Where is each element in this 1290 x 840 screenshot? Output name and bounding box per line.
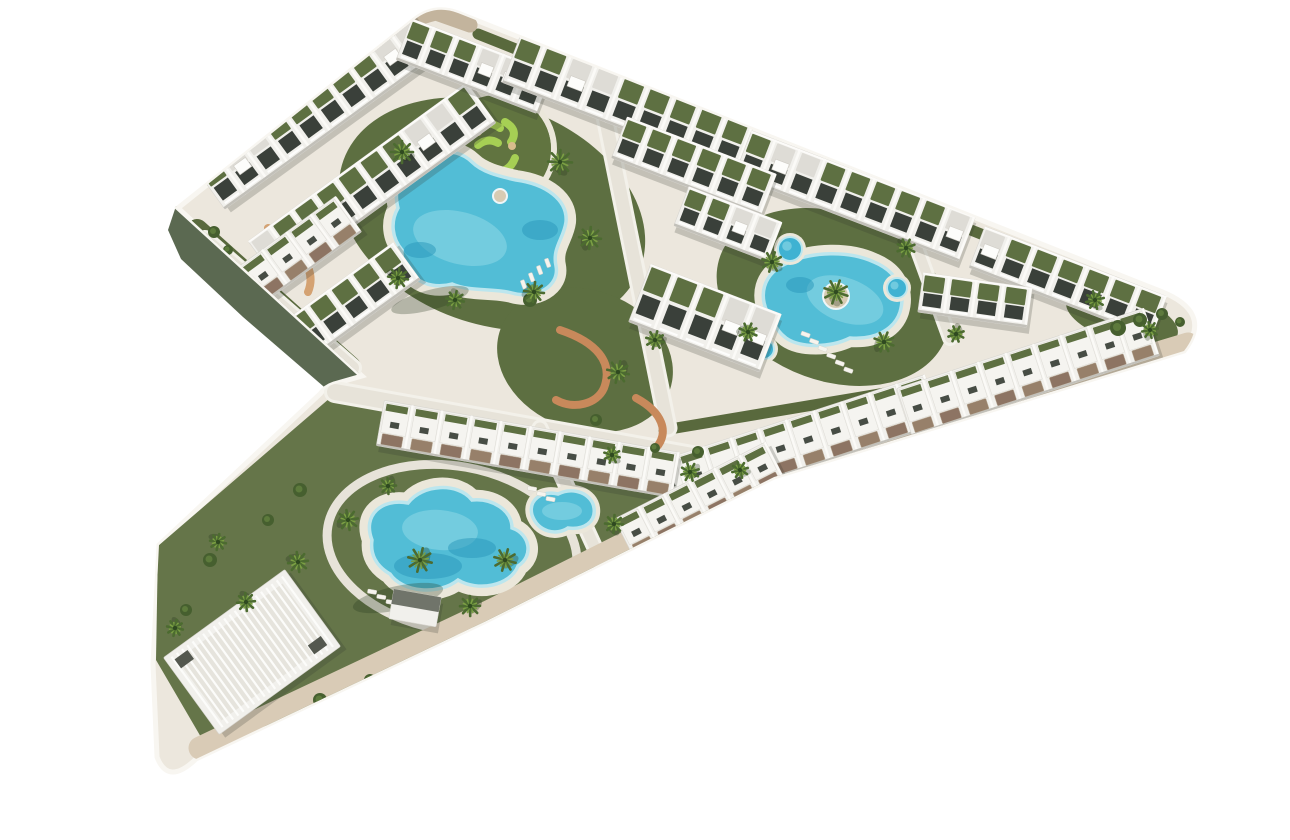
render-canvas bbox=[0, 0, 1290, 840]
palm-frond bbox=[498, 643, 505, 650]
palm-crown bbox=[560, 598, 564, 602]
window-band bbox=[949, 297, 969, 313]
bush-highlight bbox=[616, 611, 622, 617]
bush-highlight bbox=[652, 445, 657, 450]
palm-frond bbox=[640, 588, 645, 594]
palm-shadow bbox=[627, 579, 643, 594]
bush-highlight bbox=[1177, 319, 1182, 324]
palm-tree bbox=[552, 590, 574, 610]
palm-frond bbox=[562, 597, 569, 600]
spa-circle bbox=[883, 274, 911, 302]
site-interior bbox=[156, 13, 1188, 748]
palm-frond bbox=[503, 638, 506, 644]
bush bbox=[614, 609, 626, 621]
palm-shadow bbox=[496, 638, 505, 655]
palm-frond bbox=[635, 584, 640, 589]
window-band bbox=[977, 300, 997, 316]
pool-depth bbox=[786, 277, 814, 293]
roof-garden bbox=[977, 283, 1000, 302]
palm-frond bbox=[562, 600, 569, 607]
palm-frond bbox=[499, 643, 505, 646]
palm-frond bbox=[505, 644, 511, 647]
roof-garden bbox=[1004, 287, 1027, 306]
palm-frond bbox=[562, 600, 569, 603]
palm-crown bbox=[637, 585, 643, 591]
palm-frond bbox=[637, 583, 642, 588]
roof-garden bbox=[950, 279, 973, 298]
palm-frond bbox=[505, 635, 506, 644]
palm-frond bbox=[637, 580, 645, 588]
pool-depth bbox=[448, 538, 496, 558]
palm-frond bbox=[555, 600, 562, 607]
palm-frond bbox=[505, 638, 508, 644]
bush-highlight bbox=[206, 556, 213, 563]
pool-lower bbox=[369, 488, 528, 590]
palm-tree bbox=[627, 577, 651, 601]
pool-kidney bbox=[531, 491, 594, 532]
bush-highlight bbox=[581, 636, 588, 643]
palm-frond bbox=[559, 600, 562, 607]
palm-frond bbox=[562, 594, 565, 601]
bush-highlight bbox=[225, 247, 230, 252]
palm-tree bbox=[495, 634, 515, 656]
pool-depth bbox=[522, 220, 558, 240]
bush-highlight bbox=[1113, 323, 1121, 331]
palm-frond bbox=[502, 644, 505, 650]
bush-highlight bbox=[592, 416, 598, 422]
palm-frond bbox=[562, 593, 569, 600]
bush-highlight bbox=[264, 516, 270, 522]
palm-frond bbox=[635, 582, 640, 588]
palm-frond bbox=[636, 588, 644, 596]
palm-frond bbox=[499, 637, 506, 644]
bush-highlight bbox=[210, 228, 216, 234]
palm-frond bbox=[505, 642, 511, 645]
palm-frond bbox=[635, 586, 640, 591]
pool-island bbox=[493, 189, 507, 203]
palm-frond bbox=[496, 643, 505, 644]
palm-frond bbox=[636, 588, 641, 593]
palm-crown bbox=[400, 150, 404, 154]
palm-frond bbox=[504, 644, 507, 650]
palm-frond bbox=[505, 638, 512, 645]
palm-frond bbox=[555, 593, 562, 600]
palm-shadow bbox=[556, 599, 574, 608]
window-band bbox=[922, 293, 942, 309]
roof-garden bbox=[923, 275, 946, 294]
pool-depth bbox=[404, 242, 436, 258]
palm-frond bbox=[499, 641, 505, 644]
palm-frond bbox=[559, 593, 562, 600]
window-band bbox=[1004, 304, 1024, 320]
site-plan-render bbox=[0, 0, 1290, 840]
palm-frond bbox=[505, 644, 514, 645]
palm-frond bbox=[556, 597, 563, 600]
palm-frond bbox=[562, 600, 565, 607]
palm-frond bbox=[632, 584, 640, 592]
palm-frond bbox=[504, 644, 505, 653]
palm-frond bbox=[638, 588, 643, 593]
minigolf-sand bbox=[508, 142, 516, 150]
bush-highlight bbox=[1158, 310, 1164, 316]
bush bbox=[578, 633, 592, 647]
palm-crown bbox=[503, 642, 508, 647]
bush-highlight bbox=[296, 486, 303, 493]
palm-frond bbox=[555, 600, 562, 603]
palm-frond bbox=[640, 583, 646, 588]
bush-highlight bbox=[694, 448, 700, 454]
palm-frond bbox=[639, 583, 644, 588]
palm-frond bbox=[640, 587, 645, 592]
palm-frond bbox=[640, 585, 648, 593]
pool-shallow bbox=[542, 502, 582, 520]
bush-highlight bbox=[1136, 316, 1143, 323]
bush-highlight bbox=[182, 606, 188, 612]
palm-frond bbox=[504, 644, 511, 651]
palm-frond bbox=[634, 588, 640, 593]
palm-frond bbox=[640, 585, 645, 590]
